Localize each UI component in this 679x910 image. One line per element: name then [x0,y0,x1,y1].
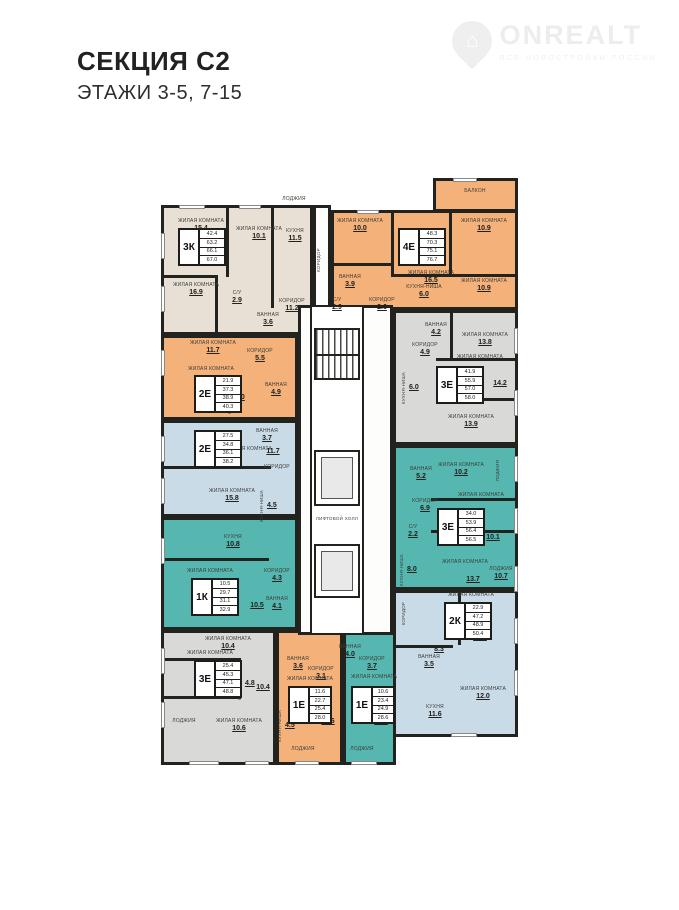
unit-area-table: 48.3 70.3 75.1 76.7 [420,230,444,264]
area-value: 25.4 [216,662,240,671]
page-subtitle: ЭТАЖИ 3-5, 7-15 [77,82,242,105]
header: СЕКЦИЯ С2 ЭТАЖИ 3-5, 7-15 [77,46,242,105]
area-value: 48.8 [216,688,240,696]
area-value: 24.9 [373,706,393,715]
wall-segment [226,205,229,277]
window-mark [189,761,219,765]
floor-plan-page: СЕКЦИЯ С2 ЭТАЖИ 3-5, 7-15 ⌂ ONREALT ВСЕ … [0,0,679,910]
window-mark [161,702,165,728]
area-value: 56.5 [459,536,483,544]
area-value: 67.0 [200,256,224,264]
area-value: 41.9 [458,368,482,377]
wall-segment [391,274,518,277]
area-value: 57.0 [458,386,482,395]
floor-plan: ЛИФТОВОЙ ХОЛЛ КОРИДОР [161,178,518,765]
window-mark [161,478,165,504]
area-value: 56.4 [459,528,483,537]
watermark-text: ONREALT ВСЕ НОВОСТРОЙКИ РОССИИ [500,20,657,62]
window-mark [245,761,269,765]
window-mark [514,456,518,482]
unit-area-table: 42.4 63.2 66.1 67.0 [200,230,224,264]
area-value: 47.2 [466,613,490,622]
unit-type-label: 2Е [196,377,216,411]
area-value: 10.5 [213,580,237,589]
unit-1e-teal-badge: 1Е 10.6 23.4 24.9 28.6 [351,686,395,724]
area-value: 70.3 [420,239,444,248]
area-value: 37.3 [216,386,240,395]
window-mark [453,178,477,182]
area-value: 55.9 [458,377,482,386]
balcony-block [433,178,518,212]
unit-3e-teal-badge: 3Е 34.0 53.9 56.4 56.5 [437,508,485,546]
wall-segment [215,275,218,335]
wall-segment [271,205,274,308]
wall-segment [436,358,518,361]
room-label: ЛОДЖИЯ [271,196,317,202]
unit-area-table: 27.5 34.8 36.1 38.2 [216,432,240,466]
area-value: 31.1 [213,598,237,607]
wall-segment [431,498,518,501]
area-value: 21.9 [216,377,240,386]
brand-tagline: ВСЕ НОВОСТРОЙКИ РОССИИ [500,53,657,62]
window-mark [451,733,477,737]
unit-3e-gray-r-badge: 3Е 41.9 55.9 57.0 58.0 [436,366,484,404]
unit-type-label: 2Е [196,432,216,466]
unit-3e-gray-bl-badge: 3Е 25.4 45.3 47.1 48.8 [194,660,242,698]
window-mark [161,233,165,259]
window-mark [357,210,379,214]
unit-1e-orange-badge: 1Е 11.6 22.7 25.4 28.0 [288,686,332,724]
elevator-1 [314,450,360,506]
area-value: 38.9 [216,395,240,404]
unit-4e-badge: 4Е 48.3 70.3 75.1 76.7 [398,228,446,266]
area-value: 10.6 [373,688,393,697]
unit-type-label: 2К [446,604,466,638]
area-value: 36.1 [216,450,240,459]
area-value: 47.1 [216,680,240,689]
window-mark [514,390,518,416]
wall-segment [391,210,394,276]
unit-area-table: 10.5 29.7 31.1 32.9 [213,580,237,614]
window-mark [514,670,518,696]
window-mark [514,566,518,592]
area-value: 28.6 [373,714,393,722]
area-value: 38.2 [216,458,240,466]
unit-2e-orange-badge: 2Е 21.9 37.3 38.9 40.3 [194,375,242,413]
area-value: 63.2 [200,239,224,248]
window-mark [161,436,165,462]
unit-area-table: 41.9 55.9 57.0 58.0 [458,368,482,402]
page-title: СЕКЦИЯ С2 [77,46,242,77]
unit-1k-badge: 1К 10.5 29.7 31.1 32.9 [191,578,239,616]
unit-type-label: 1К [193,580,213,614]
area-value: 11.6 [310,688,330,697]
unit-area-table: 10.6 23.4 24.9 28.6 [373,688,393,722]
area-value: 58.0 [458,394,482,402]
wall-segment [331,263,394,266]
area-value: 28.0 [310,714,330,722]
unit-3k-badge: 3К 42.4 63.2 66.1 67.0 [178,228,226,266]
wall-segment [450,310,453,360]
window-mark [295,761,319,765]
area-value: 32.9 [213,606,237,614]
elevator-1-cab [321,457,353,499]
brand-name: ONREALT [500,20,657,51]
window-mark [351,761,377,765]
wall-segment [449,210,452,277]
unit-2k-badge: 2К 22.9 47.2 48.9 50.4 [444,602,492,640]
watermark-logo: ⌂ ONREALT ВСЕ НОВОСТРОЙКИ РОССИИ [452,20,657,62]
unit-area-table: 11.6 22.7 25.4 28.0 [310,688,330,722]
window-mark [161,286,165,312]
lift-hall-label: ЛИФТОВОЙ ХОЛЛ [301,516,373,521]
window-mark [161,350,165,376]
unit-area-table: 34.0 53.9 56.4 56.5 [459,510,483,544]
area-value: 29.7 [213,589,237,598]
house-pin-icon: ⌂ [443,13,500,70]
area-value: 48.9 [466,622,490,631]
unit-area-table: 25.4 45.3 47.1 48.8 [216,662,240,696]
window-mark [514,508,518,534]
area-value: 75.1 [420,248,444,257]
unit-type-label: 1Е [290,688,310,722]
area-value: 66.1 [200,248,224,257]
wall-segment [161,558,269,561]
unit-3k-block [161,205,313,335]
unit-type-label: 1Е [353,688,373,722]
unit-area-table: 21.9 37.3 38.9 40.3 [216,377,240,411]
house-glyph: ⌂ [466,30,478,53]
window-mark [161,648,165,674]
elevator-2 [314,544,360,598]
elevator-2-cab [321,551,353,591]
area-value: 45.3 [216,671,240,680]
area-value: 22.7 [310,697,330,706]
room-name-label: ЛОДЖИЯ [282,196,305,202]
area-value: 48.3 [420,230,444,239]
unit-type-label: 3К [180,230,200,264]
wall-segment [161,275,218,278]
area-value: 34.0 [459,510,483,519]
unit-type-label: 3Е [438,368,458,402]
area-value: 27.5 [216,432,240,441]
unit-area-table: 22.9 47.2 48.9 50.4 [466,604,490,638]
wall-segment [393,645,453,648]
unit-type-label: 3Е [439,510,459,544]
window-mark [514,618,518,644]
area-value: 22.9 [466,604,490,613]
area-value: 53.9 [459,519,483,528]
stair-landing-line [316,354,358,356]
window-mark [161,538,165,564]
area-value: 34.8 [216,441,240,450]
staircase [314,328,360,380]
unit-type-label: 3Е [196,662,216,696]
area-value: 42.4 [200,230,224,239]
area-value: 23.4 [373,697,393,706]
area-value: 50.4 [466,630,490,638]
window-mark [514,328,518,354]
window-mark [179,205,205,209]
area-value: 76.7 [420,256,444,264]
entry-corridor-label: КОРИДОР [316,248,321,272]
window-mark [239,205,261,209]
unit-2e-blue-badge: 2Е 27.5 34.8 36.1 38.2 [194,430,242,468]
unit-type-label: 4Е [400,230,420,264]
area-value: 25.4 [310,706,330,715]
area-value: 40.3 [216,403,240,411]
